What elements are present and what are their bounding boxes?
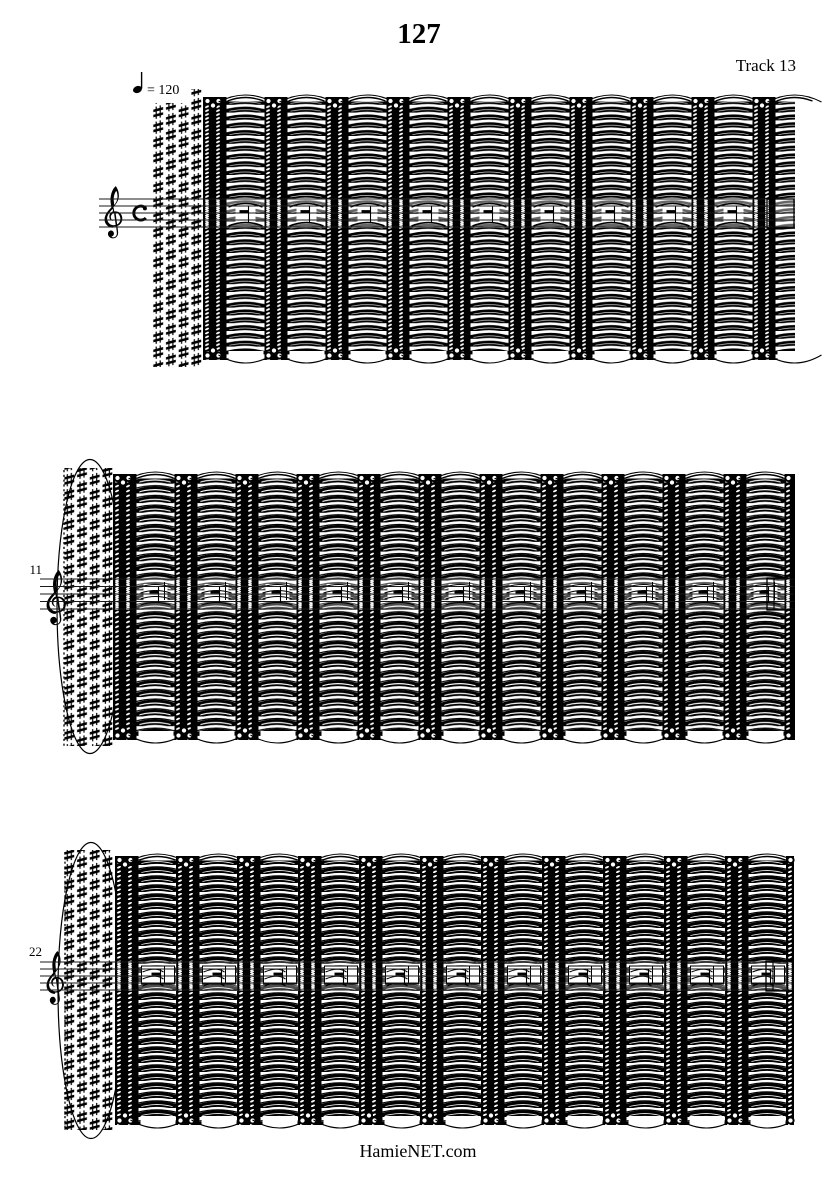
svg-text:11: 11 [29, 562, 42, 577]
svg-text:127: 127 [397, 18, 441, 50]
svg-text:= 120: = 120 [147, 83, 179, 98]
svg-text:22: 22 [29, 944, 42, 959]
svg-text:HamieNET.com: HamieNET.com [359, 1141, 476, 1161]
svg-text:Track 13: Track 13 [736, 56, 796, 75]
